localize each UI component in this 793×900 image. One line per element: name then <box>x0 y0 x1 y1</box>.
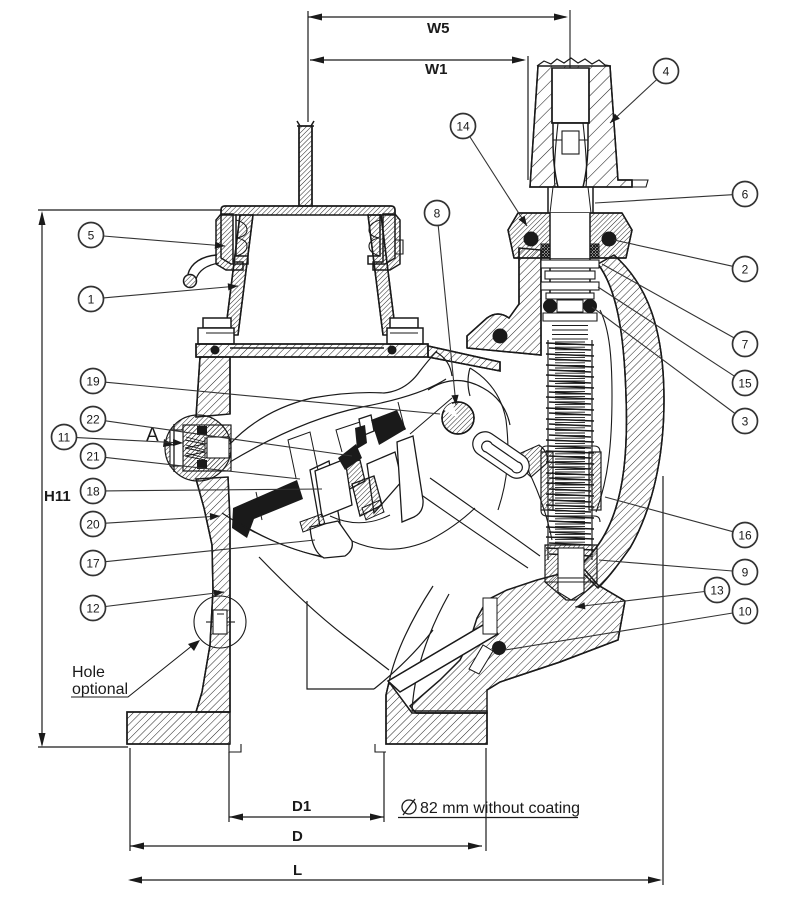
svg-text:1: 1 <box>88 293 95 307</box>
svg-text:L: L <box>293 862 302 879</box>
svg-text:10: 10 <box>738 605 752 619</box>
svg-text:W1: W1 <box>425 61 448 78</box>
svg-text:W5: W5 <box>427 20 450 37</box>
svg-text:3: 3 <box>742 415 749 429</box>
svg-text:13: 13 <box>710 584 724 598</box>
svg-text:7: 7 <box>742 338 749 352</box>
svg-text:5: 5 <box>88 229 95 243</box>
svg-text:8: 8 <box>434 207 441 221</box>
svg-text:82 mm without coating: 82 mm without coating <box>420 800 580 817</box>
svg-text:2: 2 <box>742 263 749 277</box>
svg-text:18: 18 <box>86 485 100 499</box>
svg-text:19: 19 <box>86 375 100 389</box>
svg-text:D1: D1 <box>292 798 311 815</box>
svg-text:22: 22 <box>86 413 100 427</box>
svg-text:D: D <box>292 828 303 845</box>
svg-text:14: 14 <box>456 120 470 134</box>
svg-text:12: 12 <box>86 602 100 616</box>
svg-text:H11: H11 <box>44 488 71 505</box>
svg-text:Hole: Hole <box>72 664 105 681</box>
svg-text:optional: optional <box>72 681 128 698</box>
svg-text:4: 4 <box>663 65 670 79</box>
svg-text:21: 21 <box>86 450 100 464</box>
svg-text:9: 9 <box>742 566 749 580</box>
svg-text:11: 11 <box>58 431 71 445</box>
svg-text:6: 6 <box>742 188 749 202</box>
svg-text:17: 17 <box>86 557 100 571</box>
svg-text:20: 20 <box>86 518 100 532</box>
svg-text:15: 15 <box>738 377 752 391</box>
svg-text:16: 16 <box>738 529 752 543</box>
